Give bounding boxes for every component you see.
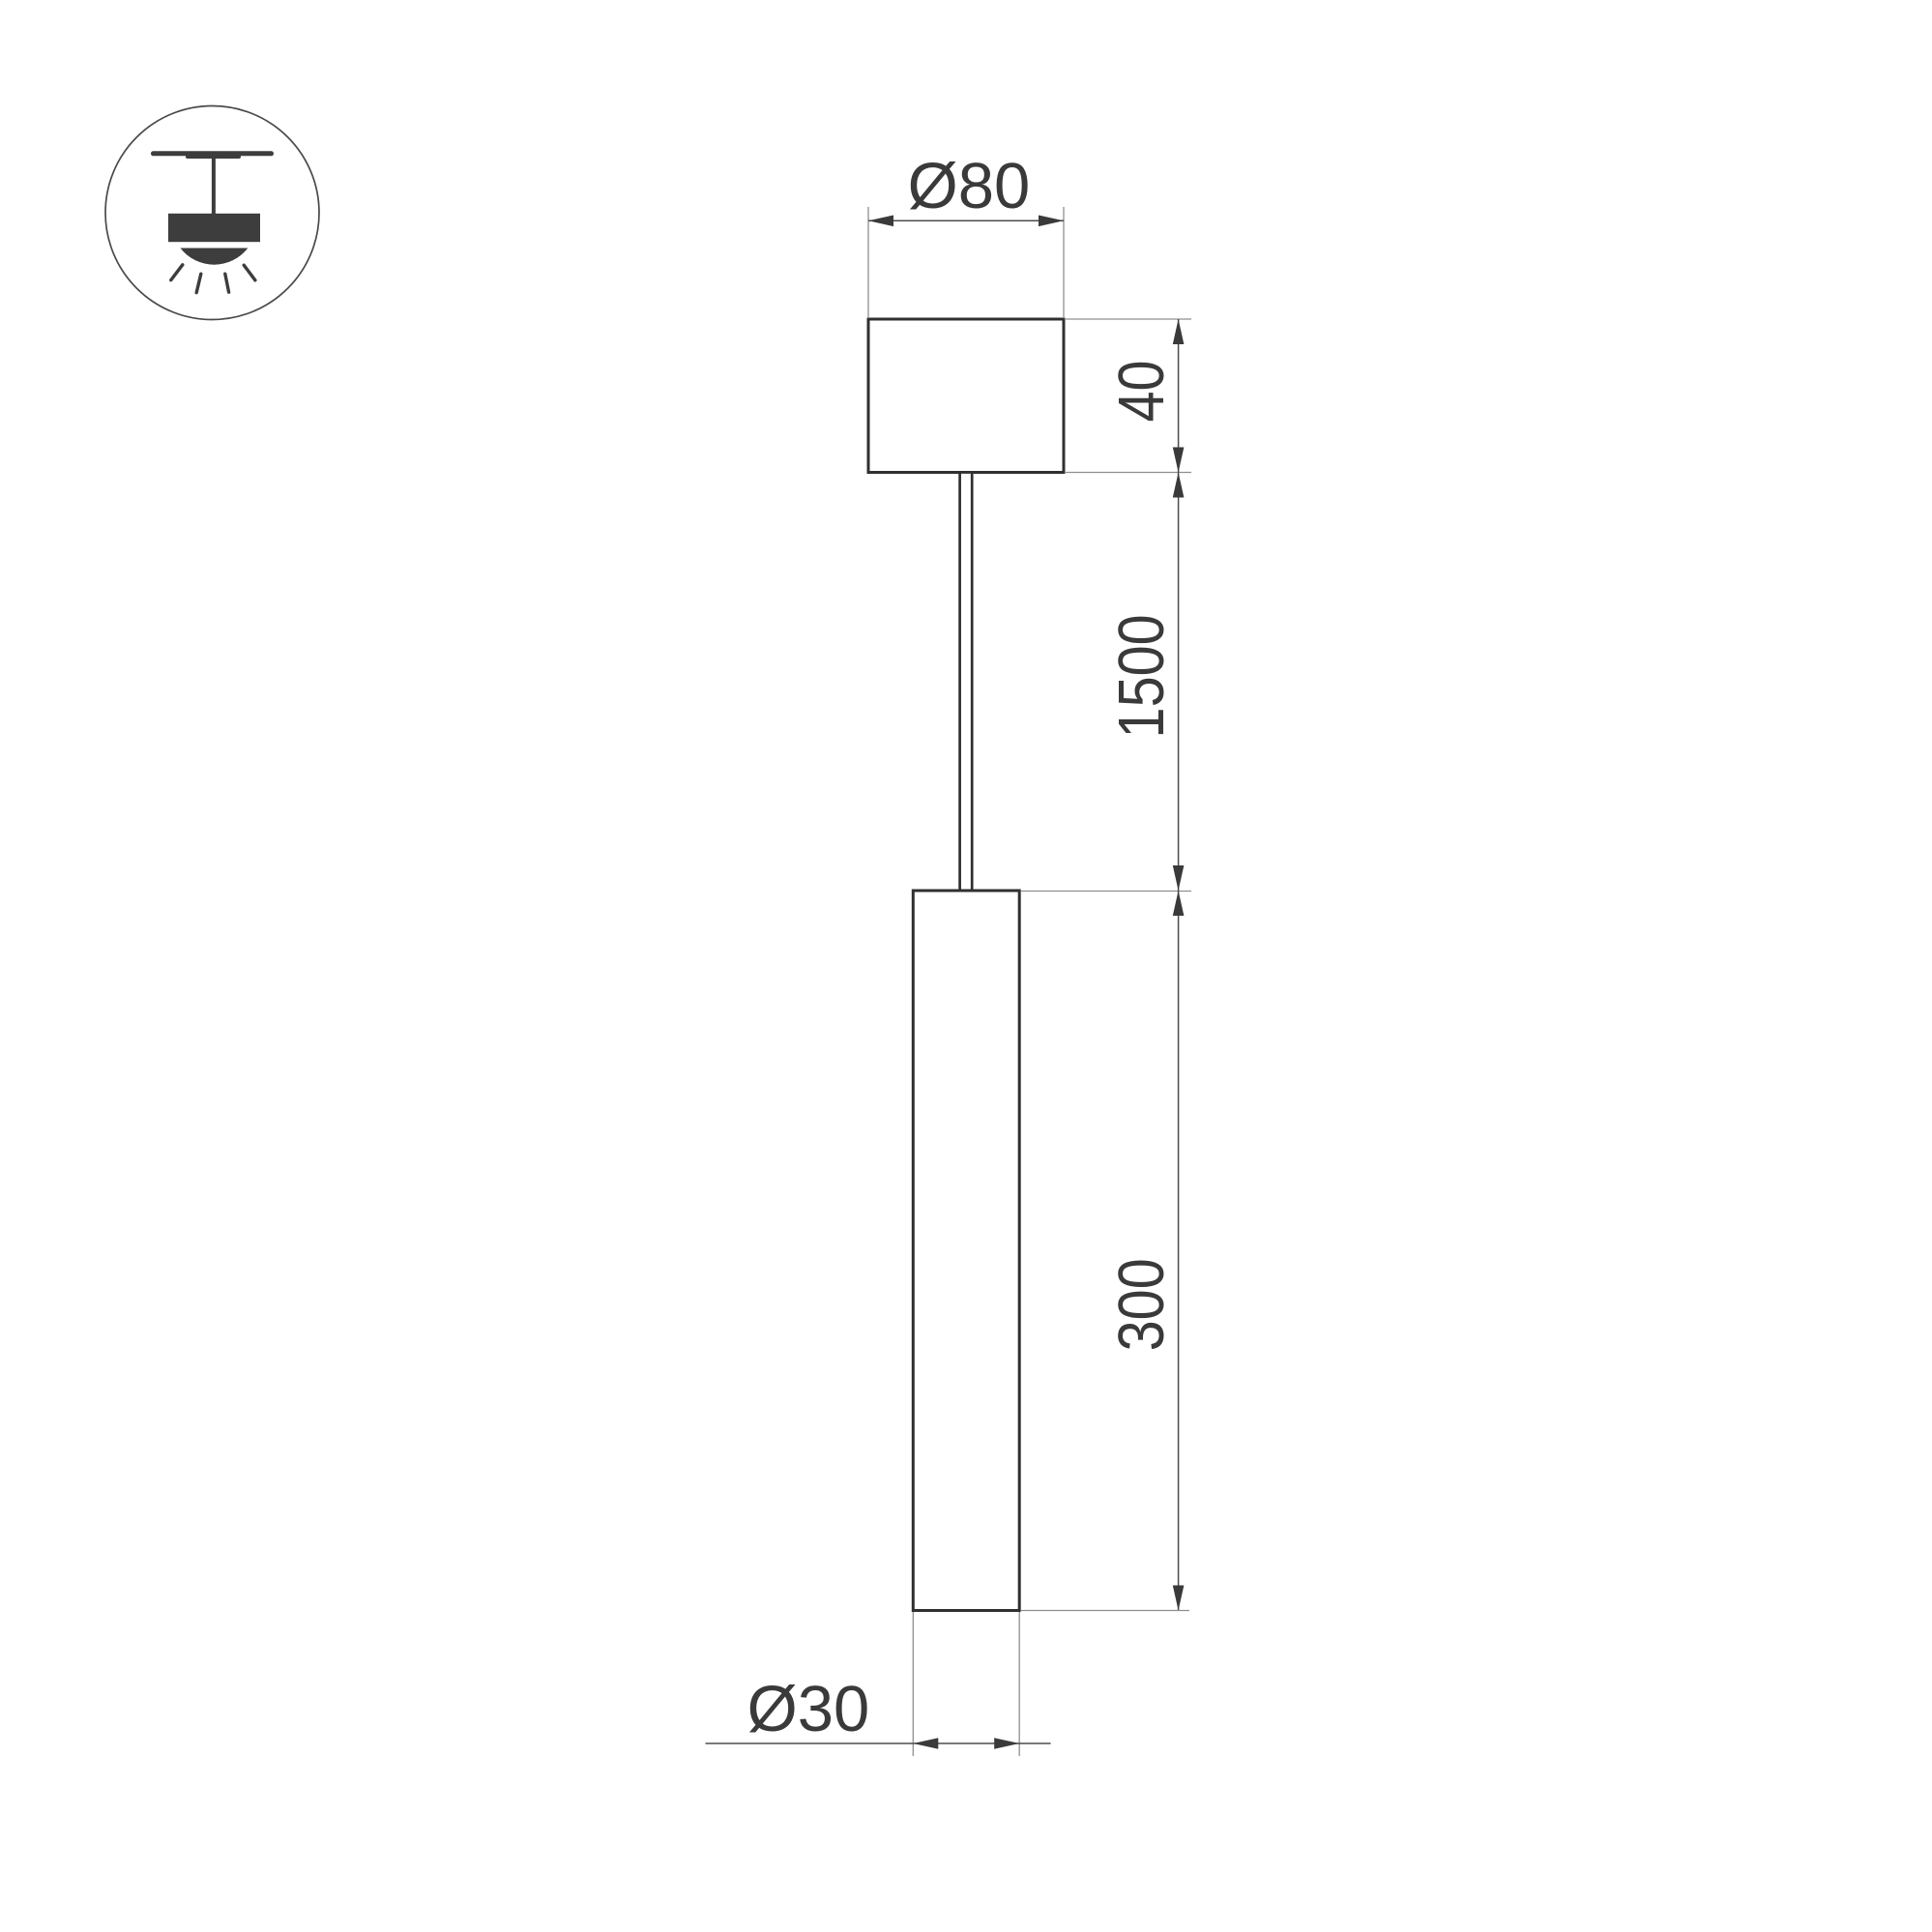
- svg-text:Ø80: Ø80: [908, 150, 1031, 222]
- svg-text:300: 300: [1105, 1258, 1178, 1351]
- svg-text:Ø30: Ø30: [747, 1673, 870, 1745]
- svg-text:1500: 1500: [1105, 614, 1178, 738]
- svg-text:40: 40: [1105, 360, 1178, 422]
